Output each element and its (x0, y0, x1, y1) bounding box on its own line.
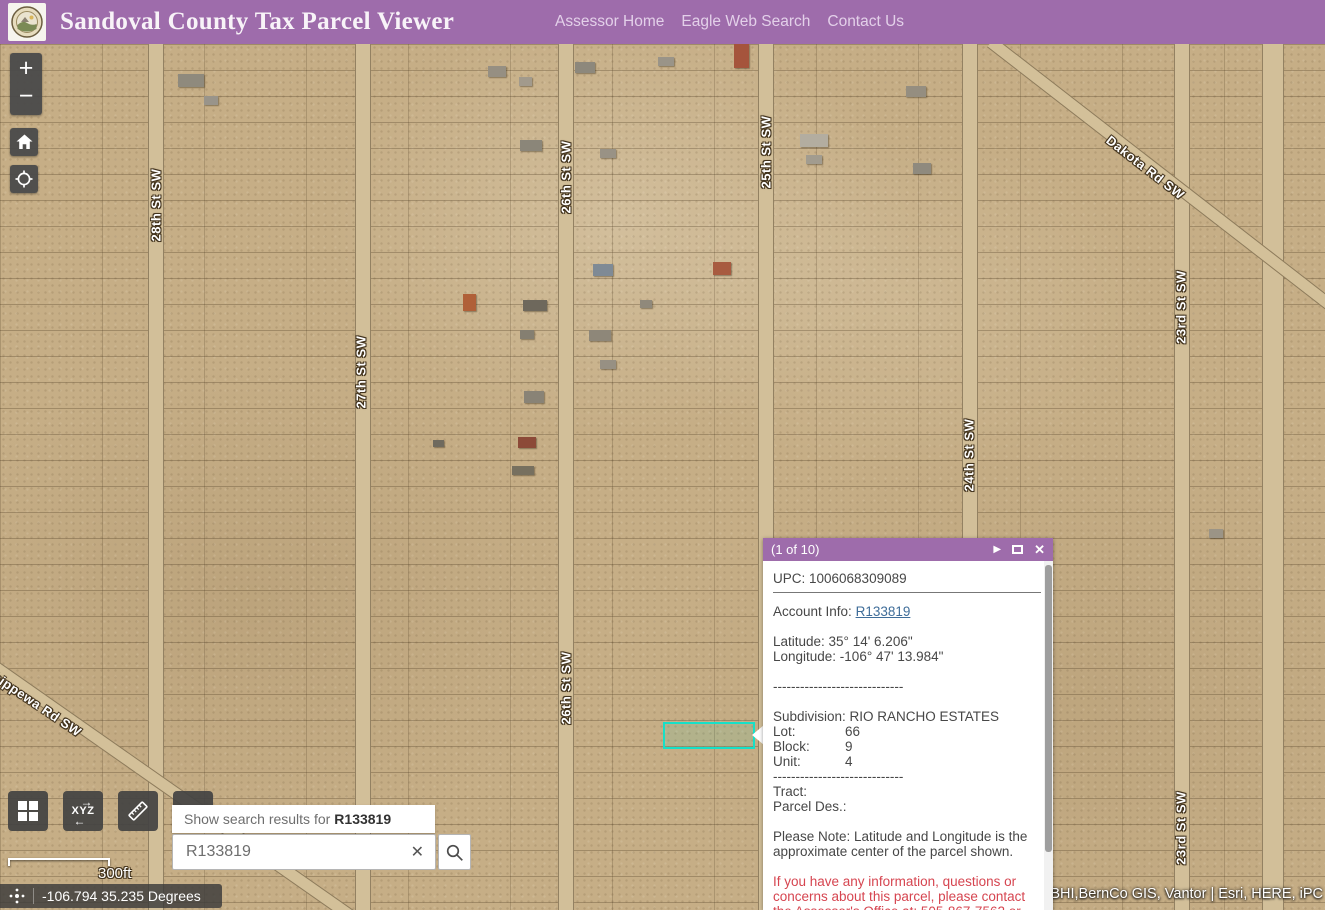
suggestion-term: R133819 (334, 811, 391, 827)
building (575, 62, 595, 73)
separator-line: ----------------------------- (773, 769, 1031, 784)
building (520, 330, 534, 339)
coordinate-readout: -106.794 35.235 Degrees (42, 888, 201, 904)
home-extent-button[interactable] (10, 128, 38, 156)
building (906, 86, 926, 97)
ruler-icon (126, 799, 150, 823)
search-input[interactable] (173, 843, 400, 861)
basemap-gallery-button[interactable] (8, 791, 48, 831)
app-header: Sandoval County Tax Parcel Viewer Assess… (0, 0, 1325, 44)
building (433, 440, 444, 447)
building (520, 140, 542, 151)
xyz-convert-icon: → XYZ ← (72, 798, 95, 825)
building (589, 330, 611, 341)
locate-icon (15, 170, 33, 188)
lot-line: Lot:66 (773, 724, 1031, 739)
parcel-grid-lines (0, 44, 1325, 910)
latitude-line: Latitude: 35° 14' 6.206" (773, 634, 1031, 649)
street-label: 26th St SW (559, 141, 574, 214)
street-label: 26th St SW (559, 652, 574, 725)
page-title: Sandoval County Tax Parcel Viewer (60, 8, 454, 36)
street-strip (1174, 44, 1190, 910)
divider (773, 592, 1041, 593)
building (640, 300, 652, 308)
nav-eagle-web-search[interactable]: Eagle Web Search (681, 13, 810, 31)
coordinate-bar: -106.794 35.235 Degrees (0, 884, 222, 908)
parcel-info-popup: (1 of 10) ▶ ✕ UPC: 1006068309089 Account… (763, 538, 1053, 910)
nav-assessor-home[interactable]: Assessor Home (555, 13, 664, 31)
building (523, 300, 547, 311)
building (913, 163, 931, 174)
tract-line: Tract: (773, 784, 1031, 799)
search-submit-button[interactable] (438, 834, 471, 870)
street-strip (1262, 44, 1284, 910)
popup-scrollbar[interactable] (1044, 561, 1053, 910)
maximize-icon[interactable] (1012, 545, 1023, 554)
selected-parcel-highlight[interactable] (663, 722, 755, 749)
locate-button[interactable] (10, 165, 38, 193)
building (600, 149, 616, 158)
zoom-out-button[interactable]: − (10, 85, 42, 107)
street-label: 23rd St SW (1174, 791, 1189, 865)
building (178, 74, 204, 87)
magnifier-icon (445, 843, 464, 862)
building (488, 66, 506, 77)
building (519, 77, 532, 86)
scale-label: 300ft (98, 865, 131, 882)
scale-bar (8, 858, 110, 866)
next-feature-icon[interactable]: ▶ (993, 544, 1001, 555)
building (593, 264, 613, 276)
building (713, 262, 731, 275)
upc-line: UPC: 1006068309089 (773, 571, 1031, 586)
unit-line: Unit:4 (773, 754, 1031, 769)
nav-contact-us[interactable]: Contact Us (827, 13, 904, 31)
search-input-box: ✕ (172, 834, 436, 870)
popup-body: UPC: 1006068309089 Account Info: R133819… (763, 561, 1053, 910)
map-attribution: ,BHI,BernCo GIS, Vantor | Esri, HERE, iP… (1046, 886, 1323, 902)
zoom-control: + − (10, 53, 42, 115)
header-nav: Assessor Home Eagle Web Search Contact U… (555, 0, 904, 44)
county-seal-logo (8, 3, 46, 41)
close-icon[interactable]: ✕ (1034, 542, 1045, 558)
account-link[interactable]: R133819 (856, 604, 911, 619)
popup-pager: (1 of 10) (771, 542, 982, 557)
building (1209, 529, 1223, 538)
building (806, 155, 822, 164)
building (518, 437, 536, 448)
map-canvas[interactable]: 28th St SW 27th St SW 26th St SW 25th St… (0, 44, 1325, 910)
coordinate-conversion-button[interactable]: → XYZ ← (63, 791, 103, 831)
building (734, 44, 749, 68)
zoom-in-button[interactable]: + (10, 57, 42, 79)
suggestion-text: Show search results for (184, 811, 330, 827)
home-icon (16, 134, 33, 150)
building (658, 57, 674, 66)
popup-note: Please Note: Latitude and Longitude is t… (773, 829, 1031, 859)
grid-icon (18, 801, 38, 821)
crosshair-dots-icon[interactable] (9, 888, 25, 904)
app-window: Sandoval County Tax Parcel Viewer Assess… (0, 0, 1325, 910)
street-label: 23rd St SW (1174, 270, 1189, 344)
longitude-line: Longitude: -106° 47' 13.984" (773, 649, 1031, 664)
county-seal-icon (10, 5, 44, 39)
block-line: Block:9 (773, 739, 1031, 754)
building (524, 391, 544, 403)
building (204, 96, 218, 105)
account-info-line: Account Info: R133819 (773, 604, 1031, 619)
measure-button[interactable] (118, 791, 158, 831)
scrollbar-thumb[interactable] (1045, 565, 1052, 852)
popup-contact-warning: If you have any information, questions o… (773, 874, 1031, 910)
search-widget: ✕ (172, 834, 471, 870)
clear-search-icon[interactable]: ✕ (400, 842, 435, 862)
parcel-des-line: Parcel Des.: (773, 799, 1031, 814)
subdivision-line: Subdivision: RIO RANCHO ESTATES (773, 709, 1031, 724)
building (512, 466, 534, 475)
building (800, 134, 828, 147)
separator-line: ----------------------------- (773, 679, 1031, 694)
street-label: 24th St SW (962, 419, 977, 492)
street-label: 28th St SW (149, 169, 164, 242)
street-label: 25th St SW (759, 116, 774, 189)
divider (33, 888, 34, 904)
building (600, 360, 616, 369)
building (463, 294, 476, 311)
street-label: 27th St SW (354, 336, 369, 409)
popup-header[interactable]: (1 of 10) ▶ ✕ (763, 538, 1053, 561)
search-suggestion-item[interactable]: Show search results for R133819 (172, 805, 435, 833)
street-strip (355, 44, 371, 910)
